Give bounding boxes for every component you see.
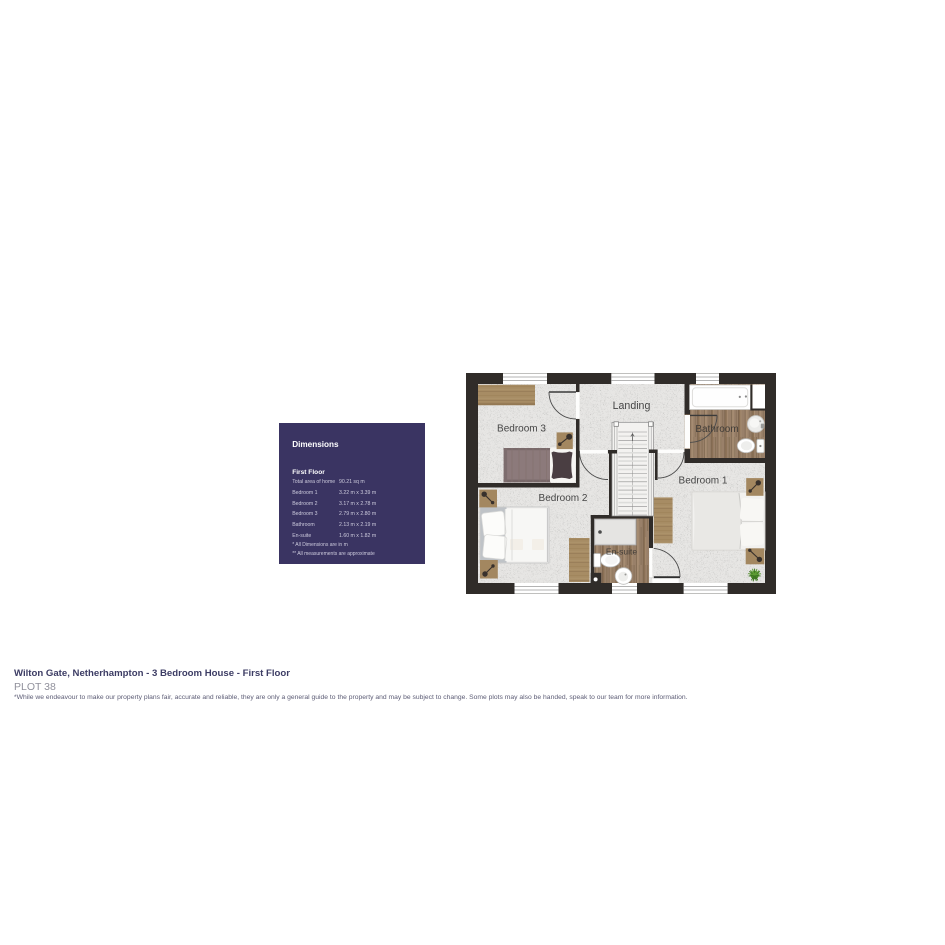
svg-text:Bedroom 1: Bedroom 1	[679, 476, 728, 487]
svg-text:Bedroom 3: Bedroom 3	[497, 424, 546, 435]
svg-text:Landing: Landing	[613, 400, 651, 412]
svg-text:Bathroom: Bathroom	[695, 424, 738, 435]
svg-text:Bedroom 2: Bedroom 2	[539, 493, 588, 504]
svg-text:En-suite: En-suite	[606, 547, 637, 557]
